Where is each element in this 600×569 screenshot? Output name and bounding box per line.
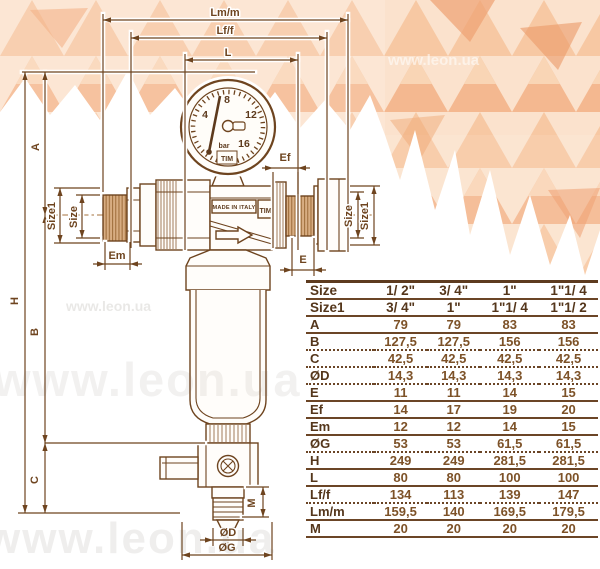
table-cell: 11 <box>374 384 427 401</box>
table-cell: 249 <box>427 452 480 469</box>
table-row: C42,542,542,542,5 <box>306 350 598 367</box>
row-label: C <box>306 350 374 367</box>
row-label: Lm/m <box>306 503 374 520</box>
gauge-brand-logo: TIM <box>221 156 233 163</box>
row-label: ØG <box>306 435 374 452</box>
dim-label-og: ØG <box>218 542 235 554</box>
row-label: Em <box>306 418 374 435</box>
table-row: H249249281,5281,5 <box>306 452 598 469</box>
table-cell: 3/ 4" <box>427 282 480 300</box>
table-cell: 79 <box>374 316 427 333</box>
table-row: B127,5127,5156156 <box>306 333 598 350</box>
table-cell: 1/ 2" <box>374 282 427 300</box>
row-label: Size1 <box>306 299 374 316</box>
spec-table-body: Size1/ 2"3/ 4"1"1"1/ 4Size13/ 4"1"1"1/ 4… <box>306 282 598 538</box>
table-cell: 249 <box>374 452 427 469</box>
table-cell: 20 <box>480 520 539 537</box>
table-row: A79798383 <box>306 316 598 333</box>
table-cell: 80 <box>427 469 480 486</box>
gauge-unit: bar <box>219 143 230 150</box>
table-cell: 14,3 <box>480 367 539 384</box>
table-cell: 83 <box>480 316 539 333</box>
table-cell: 147 <box>539 486 598 503</box>
valve-body <box>210 186 273 250</box>
gauge-tick-4: 4 <box>202 109 208 121</box>
gauge-tick-16: 16 <box>238 138 250 150</box>
table-cell: 42,5 <box>480 350 539 367</box>
row-label: A <box>306 316 374 333</box>
table-cell: 79 <box>427 316 480 333</box>
gauge-knob <box>233 122 245 130</box>
table-cell: 1"1/ 4 <box>480 299 539 316</box>
row-label: E <box>306 384 374 401</box>
table-cell: 1"1/ 4 <box>539 282 598 300</box>
table-cell: 14,3 <box>539 367 598 384</box>
table-cell: 42,5 <box>539 350 598 367</box>
dim-label-size-right: Size <box>343 205 355 227</box>
table-row: Size13/ 4"1"1"1/ 41"1/ 2 <box>306 299 598 316</box>
table-cell: 281,5 <box>480 452 539 469</box>
gauge-tick-8: 8 <box>224 94 230 106</box>
table-cell: 139 <box>480 486 539 503</box>
row-label: Size <box>306 282 374 300</box>
row-label: B <box>306 333 374 350</box>
table-cell: 15 <box>539 384 598 401</box>
table-cell: 156 <box>539 333 598 350</box>
row-label: M <box>306 520 374 537</box>
table-cell: 20 <box>539 520 598 537</box>
table-cell: 20 <box>539 401 598 418</box>
dim-label-size1-right: Size1 <box>359 202 371 230</box>
dim-label-l: L <box>225 47 232 59</box>
table-cell: 15 <box>539 418 598 435</box>
dim-label-lmm: Lm/m <box>210 7 240 19</box>
pressure-gauge: 4 8 12 16 bar TIM <box>177 76 279 178</box>
table-row: Size1/ 2"3/ 4"1"1"1/ 4 <box>306 282 598 300</box>
table-cell: 113 <box>427 486 480 503</box>
table-row: Em12121415 <box>306 418 598 435</box>
dim-label-m: M <box>246 498 258 507</box>
dim-label-em: Em <box>108 250 125 262</box>
table-row: Ef14171920 <box>306 401 598 418</box>
table-row: Lm/m159,5140169,5179,5 <box>306 503 598 520</box>
table-row: L8080100100 <box>306 469 598 486</box>
dim-label-od: ØD <box>220 527 237 539</box>
table-cell: 20 <box>427 520 480 537</box>
made-in-italy-label: MADE IN ITALY <box>212 205 255 211</box>
dim-label-a: A <box>30 143 42 151</box>
table-cell: 169,5 <box>480 503 539 520</box>
dim-label-b: B <box>29 328 41 336</box>
table-cell: 19 <box>480 401 539 418</box>
table-cell: 14 <box>374 401 427 418</box>
table-row: E11111415 <box>306 384 598 401</box>
table-cell: 1" <box>427 299 480 316</box>
dim-label-e: E <box>299 254 306 266</box>
table-cell: 12 <box>374 418 427 435</box>
table-cell: 1" <box>480 282 539 300</box>
row-label: L <box>306 469 374 486</box>
dim-label-c: C <box>29 476 41 484</box>
row-label: ØD <box>306 367 374 384</box>
table-cell: 281,5 <box>539 452 598 469</box>
table-cell: 61,5 <box>480 435 539 452</box>
table-cell: 80 <box>374 469 427 486</box>
table-row: ØG535361,561,5 <box>306 435 598 452</box>
table-cell: 127,5 <box>427 333 480 350</box>
body-brand-logo: TIM <box>259 208 271 215</box>
gauge-tick-12: 12 <box>245 109 257 121</box>
table-cell: 179,5 <box>539 503 598 520</box>
table-row: Lf/f134113139147 <box>306 486 598 503</box>
table-cell: 14,3 <box>374 367 427 384</box>
table-cell: 156 <box>480 333 539 350</box>
table-cell: 83 <box>539 316 598 333</box>
table-row: ØD14,314,314,314,3 <box>306 367 598 384</box>
table-cell: 1"1/ 2 <box>539 299 598 316</box>
table-cell: 14 <box>480 384 539 401</box>
table-cell: 14 <box>480 418 539 435</box>
table-cell: 14,3 <box>427 367 480 384</box>
table-cell: 100 <box>480 469 539 486</box>
dim-label-size-left: Size <box>68 206 80 228</box>
spec-table: Size1/ 2"3/ 4"1"1"1/ 4Size13/ 4"1"1"1/ 4… <box>306 280 598 538</box>
row-label: Ef <box>306 401 374 418</box>
dim-label-size1-left: Size1 <box>46 202 58 230</box>
table-cell: 53 <box>374 435 427 452</box>
row-label: H <box>306 452 374 469</box>
row-label: Lf/f <box>306 486 374 503</box>
table-cell: 42,5 <box>427 350 480 367</box>
table-cell: 53 <box>427 435 480 452</box>
table-cell: 127,5 <box>374 333 427 350</box>
table-row: M20202020 <box>306 520 598 537</box>
table-cell: 17 <box>427 401 480 418</box>
table-cell: 11 <box>427 384 480 401</box>
table-cell: 12 <box>427 418 480 435</box>
table-cell: 100 <box>539 469 598 486</box>
table-cell: 159,5 <box>374 503 427 520</box>
dim-label-lff: Lf/f <box>216 25 233 37</box>
dim-label-h: H <box>9 297 21 305</box>
filter-bowl <box>186 250 270 424</box>
table-cell: 134 <box>374 486 427 503</box>
table-cell: 3/ 4" <box>374 299 427 316</box>
catalog-image: 4 8 12 16 bar TIM MADE IN ITALY TIM <box>0 0 600 569</box>
table-cell: 20 <box>374 520 427 537</box>
table-cell: 42,5 <box>374 350 427 367</box>
dim-label-ef: Ef <box>280 152 291 164</box>
table-cell: 140 <box>427 503 480 520</box>
table-cell: 61,5 <box>539 435 598 452</box>
